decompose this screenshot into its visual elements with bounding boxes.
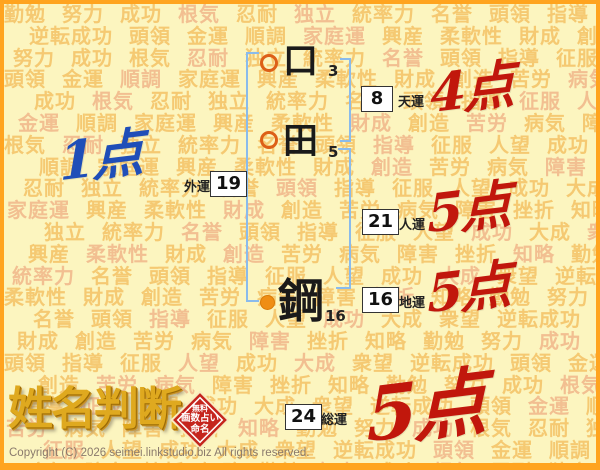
stamp-line-2: 画数占い bbox=[181, 414, 219, 425]
given-char-1: 鋼 bbox=[278, 278, 324, 324]
person-luck-score: 5点 bbox=[427, 179, 509, 241]
heaven-luck-bracket-line bbox=[349, 58, 351, 142]
surname-char-1: 口 bbox=[283, 45, 318, 80]
heaven-luck-value-box: 8 bbox=[361, 86, 393, 112]
stamp-line-3: 命名 bbox=[190, 425, 209, 436]
outer-luck-score: 1点 bbox=[59, 127, 141, 189]
person-luck-bracket-tick-top bbox=[338, 148, 351, 150]
ring-circle-icon bbox=[260, 54, 278, 72]
earth-luck-score: 5点 bbox=[427, 259, 509, 321]
total-luck-score: 5点 bbox=[366, 365, 484, 454]
seimei-handan-result-panel: 勤勉努力成功根気忍耐独立統率力名誉頭領指導征服人望成功大成衆望逆転成功頭領金運順… bbox=[0, 0, 600, 470]
person-luck-bracket-tick-bottom bbox=[336, 287, 351, 289]
copyright-text: Copyright (C) 2026 seimei.linkstudio.biz… bbox=[9, 447, 309, 459]
heaven-luck-bracket-tick-bottom bbox=[340, 140, 351, 142]
site-logo-seimei-handan: 姓名判断 bbox=[8, 384, 180, 434]
heaven-luck-label: 天運 bbox=[398, 96, 424, 109]
person-luck-bracket-line bbox=[349, 148, 351, 289]
surname-char-1-strokes: 3 bbox=[328, 64, 338, 79]
heaven-luck-score: 4点 bbox=[430, 59, 512, 121]
outer-luck-bracket-tick-top bbox=[246, 52, 259, 54]
outer-luck-value-box: 19 bbox=[210, 171, 247, 197]
filled-circle-icon bbox=[260, 295, 275, 310]
outer-luck-bracket-tick-bottom bbox=[246, 300, 259, 302]
person-luck-value-box: 21 bbox=[362, 209, 399, 235]
surname-char-2: 田 bbox=[283, 125, 318, 160]
outer-luck-label: 外運 bbox=[184, 181, 210, 194]
person-luck-label: 人運 bbox=[399, 219, 425, 232]
total-luck-label: 総運 bbox=[321, 414, 347, 427]
earth-luck-label: 地運 bbox=[399, 297, 425, 310]
surname-char-2-strokes: 5 bbox=[328, 145, 338, 160]
heaven-luck-bracket-tick-top bbox=[340, 58, 351, 60]
earth-luck-value-box: 16 bbox=[362, 287, 399, 313]
given-char-1-strokes: 16 bbox=[325, 309, 346, 324]
total-luck-value-box: 24 bbox=[285, 404, 322, 430]
ring-circle-icon bbox=[260, 131, 278, 149]
free-naming-stamp-icon: 無料 画数占い 命名 bbox=[171, 391, 229, 449]
